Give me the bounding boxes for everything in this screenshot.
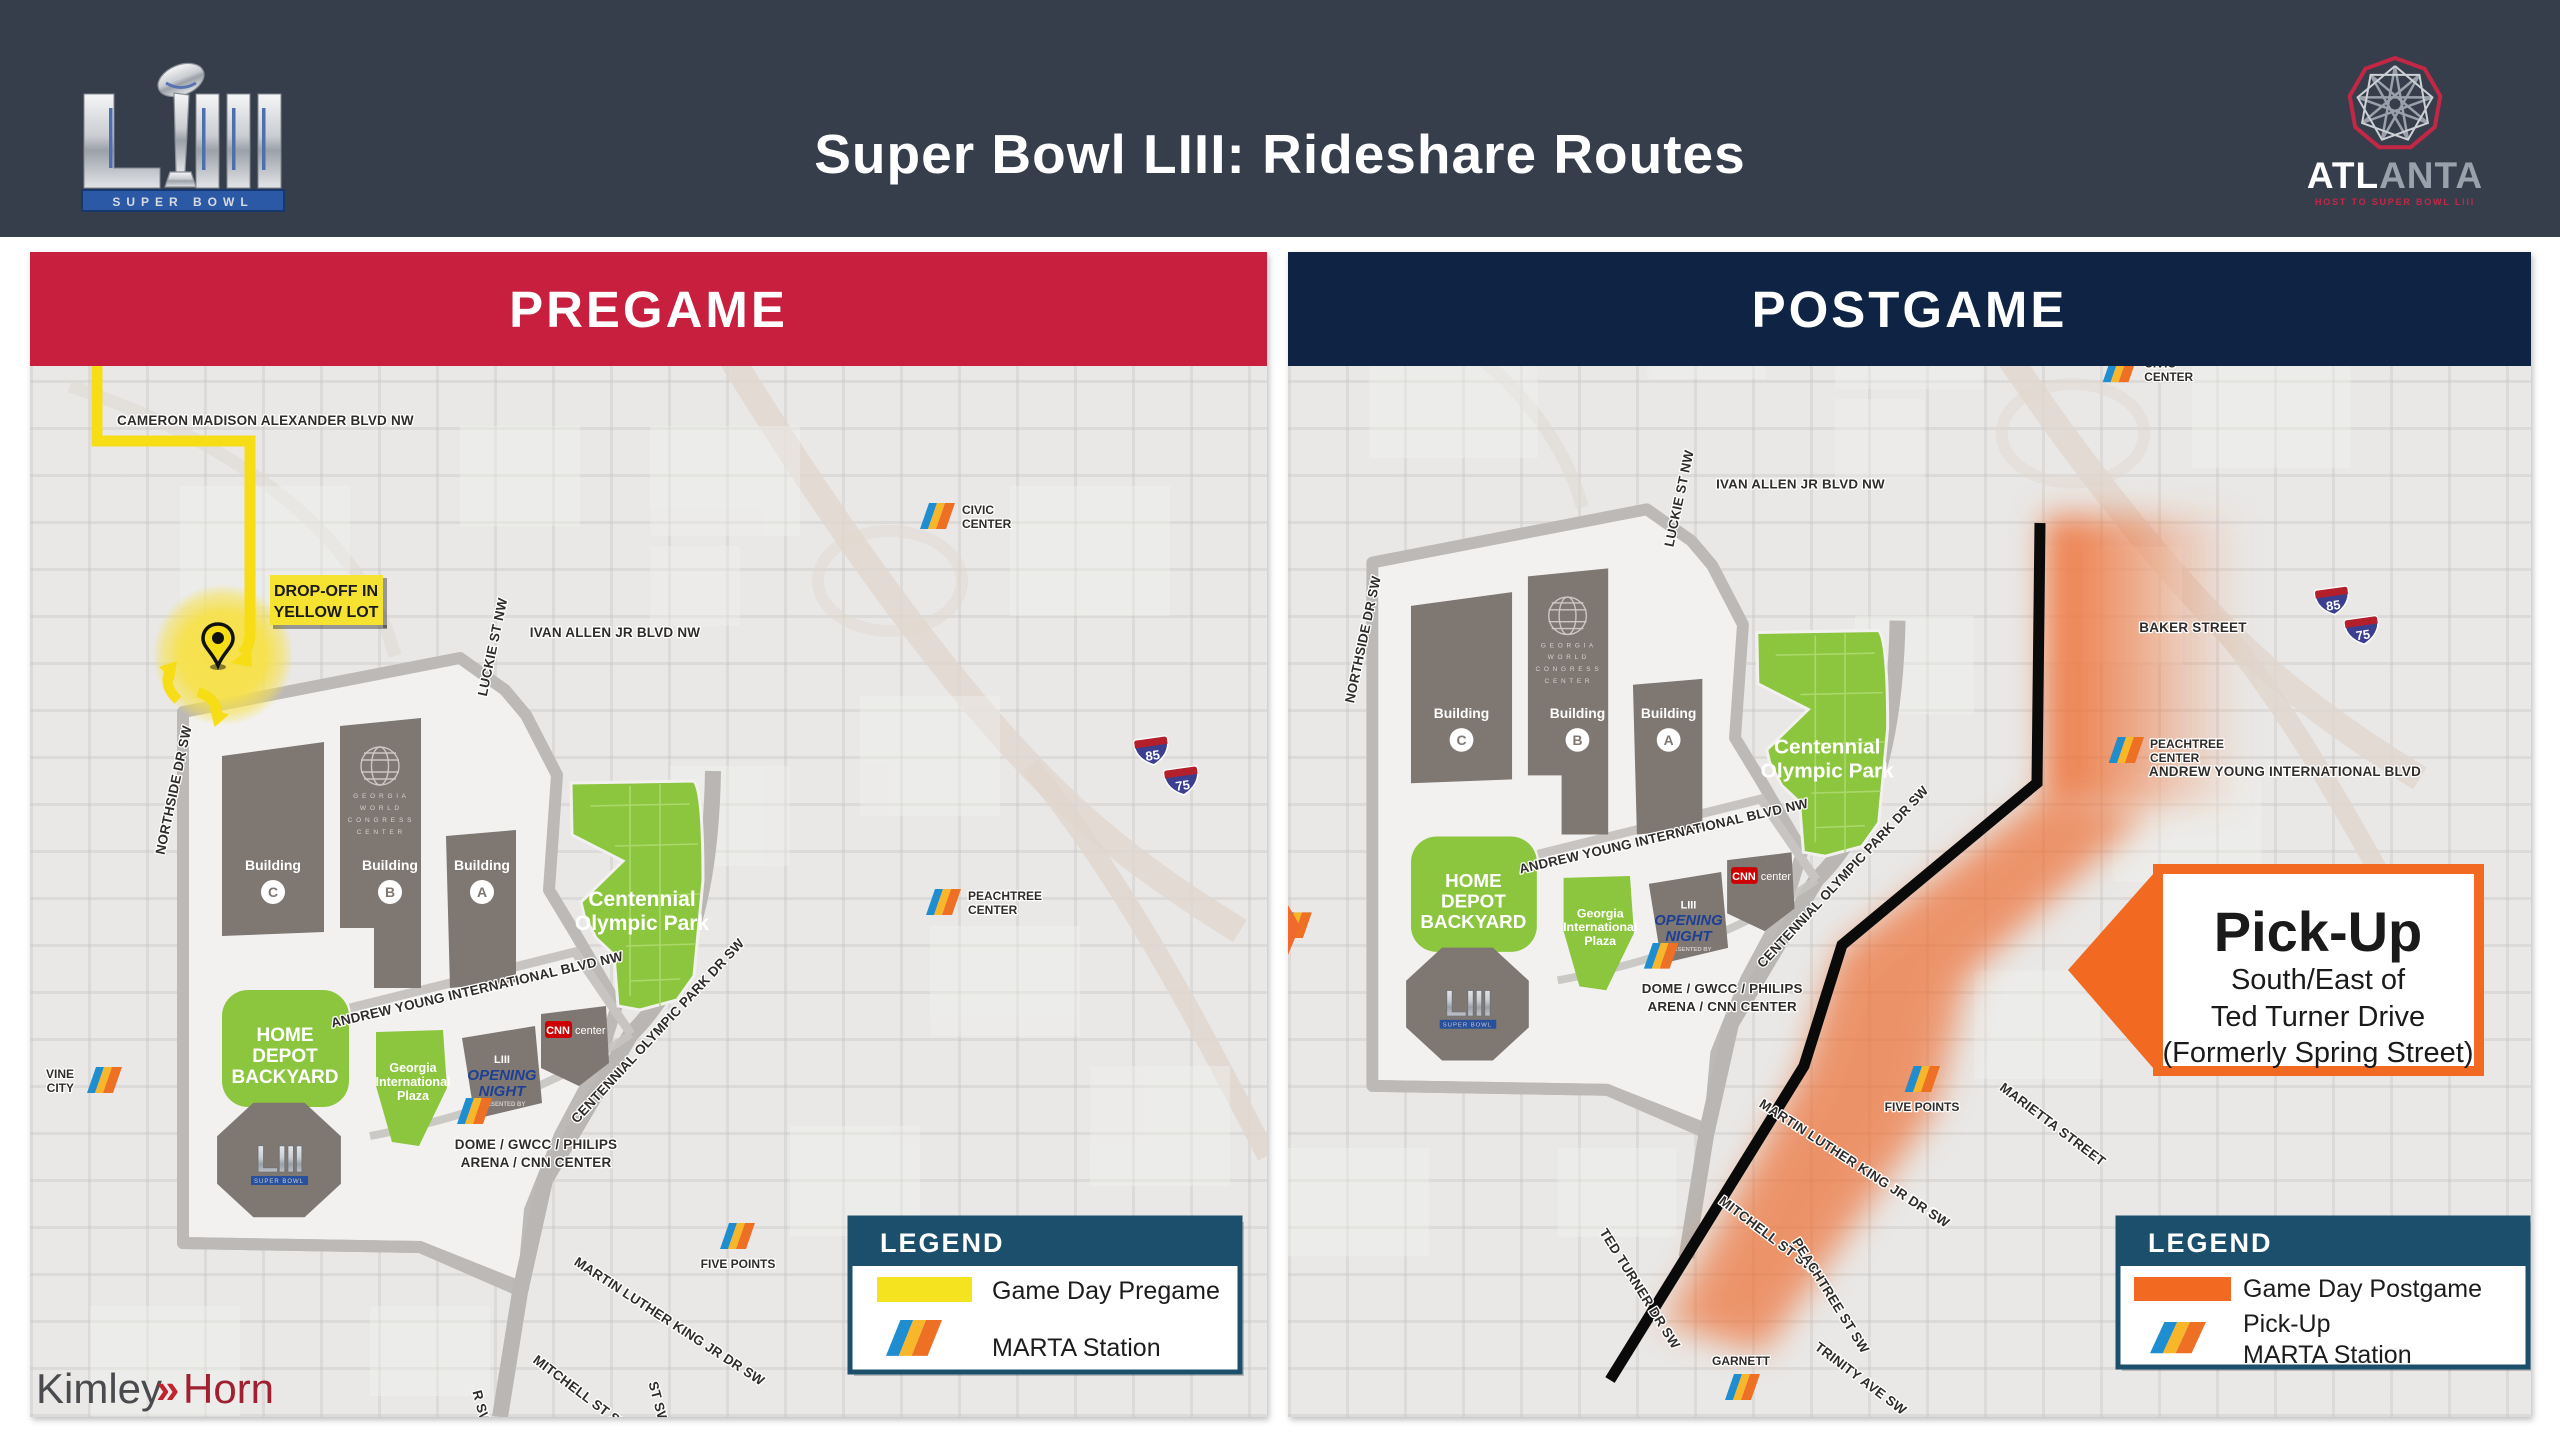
svg-text:YELLOW LOT: YELLOW LOT [274,604,379,621]
svg-text:MARTA Station: MARTA Station [2243,1341,2412,1369]
svg-text:Game Day Postgame: Game Day Postgame [2243,1275,2482,1303]
svg-text:ST SW: ST SW [645,1380,671,1417]
svg-text:LEGEND: LEGEND [2148,1228,2273,1258]
svg-text:Game Day Pregame: Game Day Pregame [992,1277,1220,1305]
svg-text:»: » [156,1365,179,1412]
svg-text:ATLANTA: ATLANTA [2307,155,2483,196]
svg-text:ANDREW YOUNG INTERNATIONAL BLV: ANDREW YOUNG INTERNATIONAL BLVD [2149,764,2421,779]
svg-text:FIVE POINTS: FIVE POINTS [1885,1100,1960,1114]
svg-text:CENTER: CENTER [2150,751,2200,765]
svg-text:HOST TO SUPER BOWL LIII: HOST TO SUPER BOWL LIII [2315,197,2475,207]
svg-text:Pick-Up: Pick-Up [2214,900,2423,963]
svg-text:Horn: Horn [183,1365,274,1412]
svg-text:Kimley: Kimley [36,1365,162,1412]
svg-text:MARIETTA STREET: MARIETTA STREET [1997,1080,2109,1169]
svg-text:South/East of: South/East of [2231,964,2406,996]
svg-text:GARNETT: GARNETT [1712,1354,1771,1368]
svg-text:Pick-Up: Pick-Up [2243,1310,2331,1338]
svg-text:BAKER STREET: BAKER STREET [2139,620,2247,635]
svg-text:SUPER BOWL: SUPER BOWL [112,195,253,209]
svg-text:PEACHTREE: PEACHTREE [2150,737,2224,751]
svg-text:DROP-OFF IN: DROP-OFF IN [274,583,378,600]
svg-text:(Formerly Spring Street): (Formerly Spring Street) [2162,1037,2473,1069]
svg-text:LEGEND: LEGEND [880,1228,1005,1258]
svg-text:MARTA Station: MARTA Station [992,1334,1161,1362]
svg-text:Ted Turner Drive: Ted Turner Drive [2211,1001,2425,1033]
